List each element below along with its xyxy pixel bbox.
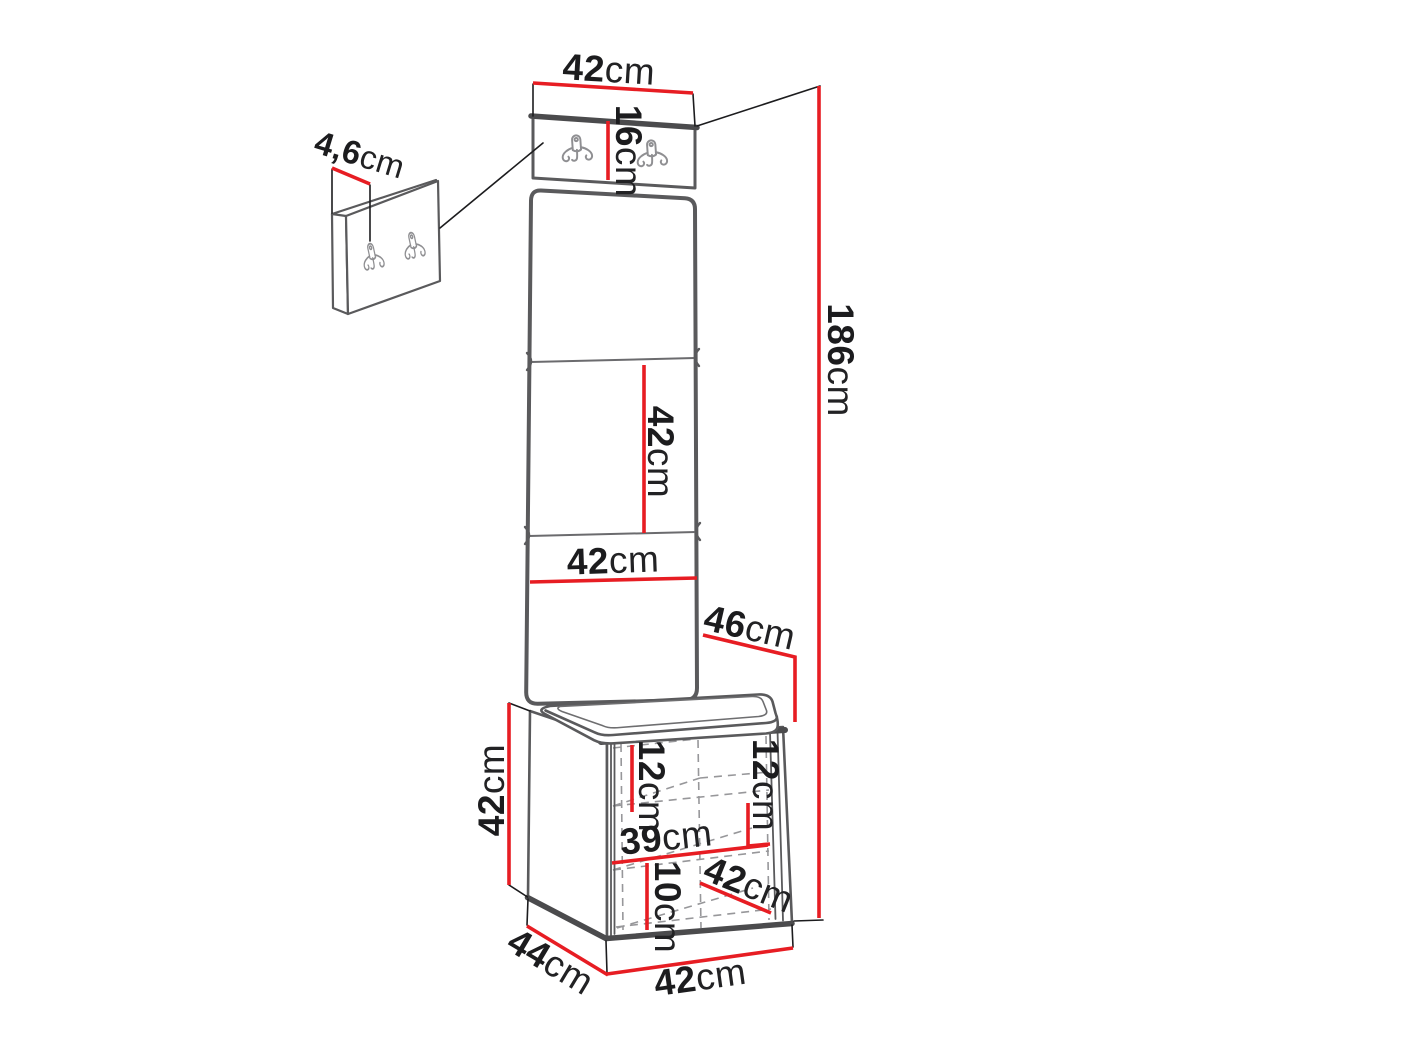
dimension-value: 12 [631,740,672,782]
dimension-unit: cm [745,781,786,831]
dimension-value: 16 [608,105,649,147]
extension-line [697,86,820,126]
dimension-unit: cm [640,448,681,498]
dimension-value: 42 [566,540,610,582]
dimension-unit: cm [647,903,688,953]
label-panel-width: 42cm [566,538,660,582]
dimension-unit: cm [693,951,749,999]
label-total-height: 186cm [820,303,861,417]
label-bench-depth: 44cm [501,920,601,1003]
label-bench-width: 42cm [651,951,748,1004]
dimension-value: 42 [640,406,681,448]
dimension-unit: cm [608,538,660,581]
dimension-unit: cm [471,744,512,794]
dimension-value: 10 [647,861,688,903]
label-wall-panel-thickness: 4,6cm [310,123,409,185]
dimension-value: 42 [471,794,512,836]
label-bench-height: 42cm [471,744,512,836]
label-bottom-shelf-spacing: 10cm [647,861,688,953]
label-hook-panel-height: 16cm [608,105,649,197]
dimension-unit: cm [660,812,714,858]
label-width-top: 42cm [562,46,657,93]
label-seat-depth: 46cm [700,597,799,658]
diagram-canvas: 42cm 16cm 4,6cm 186cm 42cm 42cm 46cm 42c… [0,0,1408,1056]
dimension-unit: cm [356,137,410,186]
extension-line [794,920,823,921]
extension-line [606,941,607,973]
label-right-shelf-spacing: 12cm [745,739,786,831]
dimension-value: 12 [745,739,786,781]
label-panel-section-height: 42cm [640,406,681,498]
dimension-value: 42 [651,958,698,1004]
furniture-dimension-diagram: 42cm 16cm 4,6cm 186cm 42cm 42cm 46cm 42c… [0,0,1408,1056]
dimension-unit: cm [604,49,657,93]
dimension-value: 186 [820,303,861,366]
extension-line [792,925,793,947]
wall-hook-panel-detail [332,180,440,314]
dimension-unit: cm [741,607,799,658]
extension-line [693,94,695,126]
extension-line [509,885,528,897]
detail-pointer-line [440,143,543,228]
dimension-value: 39 [618,818,664,863]
extension-line [527,899,528,925]
panel-front-face [346,181,440,314]
dimension-unit: cm [820,366,861,416]
dimension-unit: cm [608,147,649,197]
extension-line [509,703,530,711]
dimension-value: 42 [562,46,607,89]
